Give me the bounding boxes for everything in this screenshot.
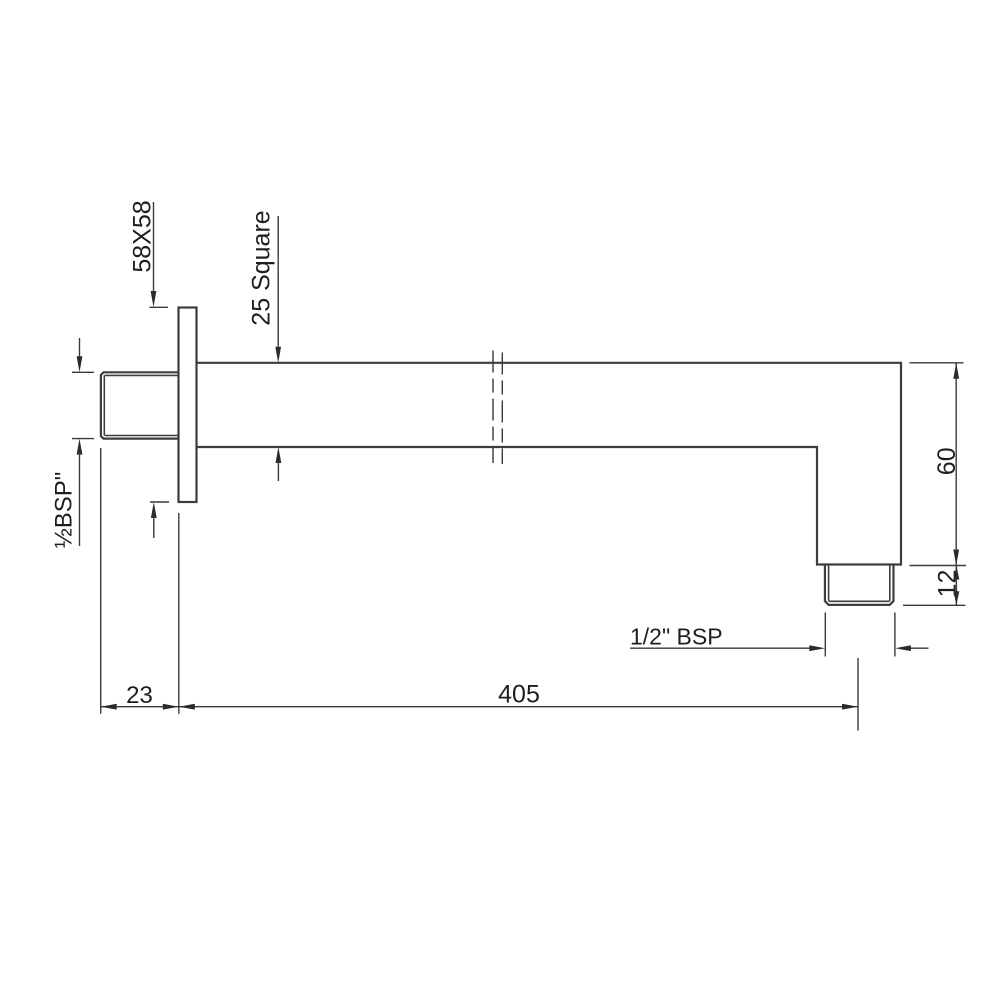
- svg-text:½BSP": ½BSP": [51, 472, 78, 549]
- svg-text:23: 23: [126, 682, 153, 709]
- svg-text:1/2" BSP: 1/2" BSP: [630, 624, 723, 650]
- svg-text:405: 405: [498, 681, 540, 709]
- svg-text:58X58: 58X58: [129, 200, 157, 272]
- svg-text:25 Square: 25 Square: [248, 210, 276, 325]
